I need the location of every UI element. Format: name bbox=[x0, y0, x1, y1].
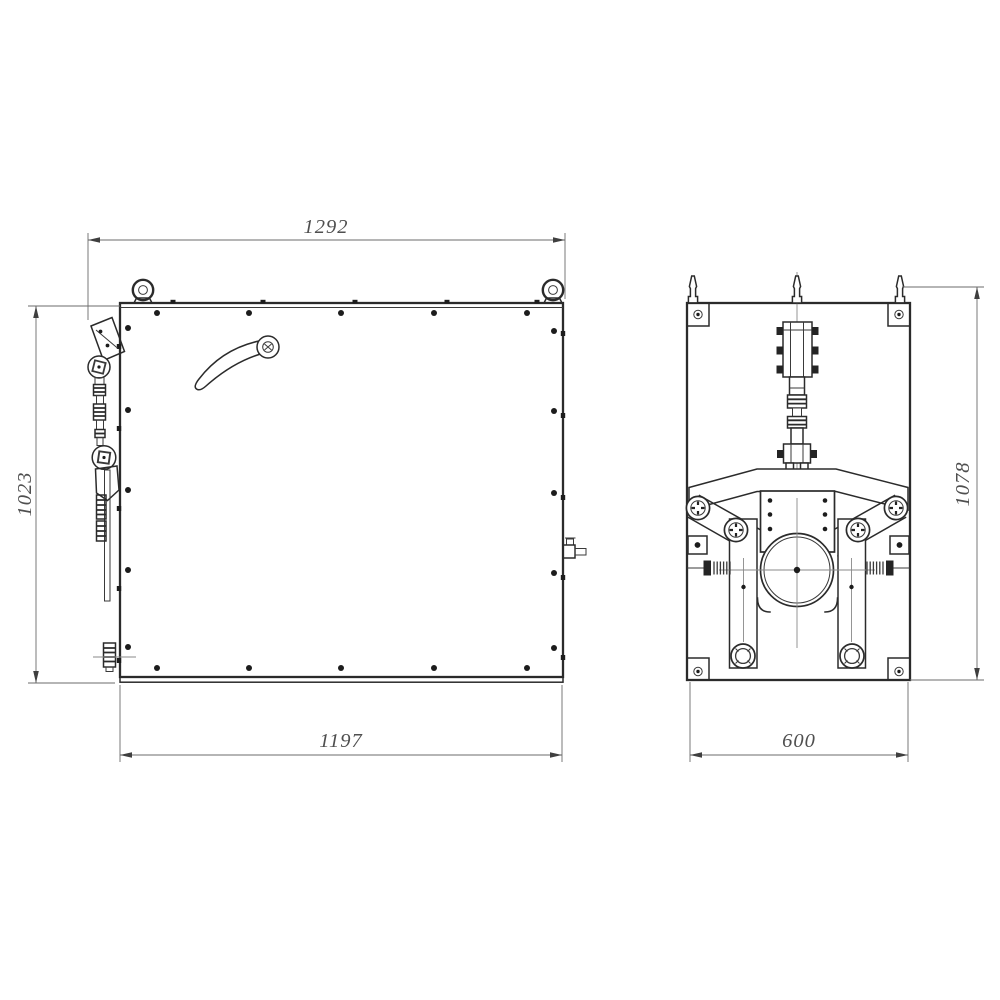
lifting-eye-right bbox=[543, 280, 563, 303]
top-pins bbox=[688, 276, 904, 303]
dim-text-600: 600 bbox=[782, 730, 816, 752]
foot-rollers bbox=[731, 644, 864, 668]
dim-text-1078: 1078 bbox=[952, 462, 974, 507]
front-housing-outline bbox=[120, 303, 563, 677]
cam-lever-handle bbox=[195, 336, 279, 390]
front-view bbox=[88, 280, 586, 682]
dim-text-1292: 1292 bbox=[304, 216, 349, 238]
side-fitting-valve bbox=[563, 538, 586, 558]
dimension-1292: 1292 bbox=[88, 216, 565, 320]
dim-text-1023: 1023 bbox=[14, 472, 36, 517]
spring-bolt-right bbox=[867, 536, 910, 576]
dimension-1197: 1197 bbox=[120, 685, 562, 762]
spring-bolt-left bbox=[687, 536, 730, 576]
tensioner-rod bbox=[777, 322, 819, 492]
side-view bbox=[686, 272, 910, 680]
door-latch-assembly bbox=[88, 318, 136, 672]
drawing-canvas: 1292 1023 1197 600 1078 bbox=[0, 0, 1000, 1000]
dim-text-1197: 1197 bbox=[319, 730, 362, 752]
lifting-eye-left bbox=[133, 280, 153, 303]
bolt-row-bottom bbox=[154, 665, 530, 671]
dimension-600: 600 bbox=[690, 682, 908, 762]
technical-drawing: 1292 1023 1197 600 1078 bbox=[0, 0, 1000, 1000]
dimension-1078: 1078 bbox=[902, 287, 984, 680]
